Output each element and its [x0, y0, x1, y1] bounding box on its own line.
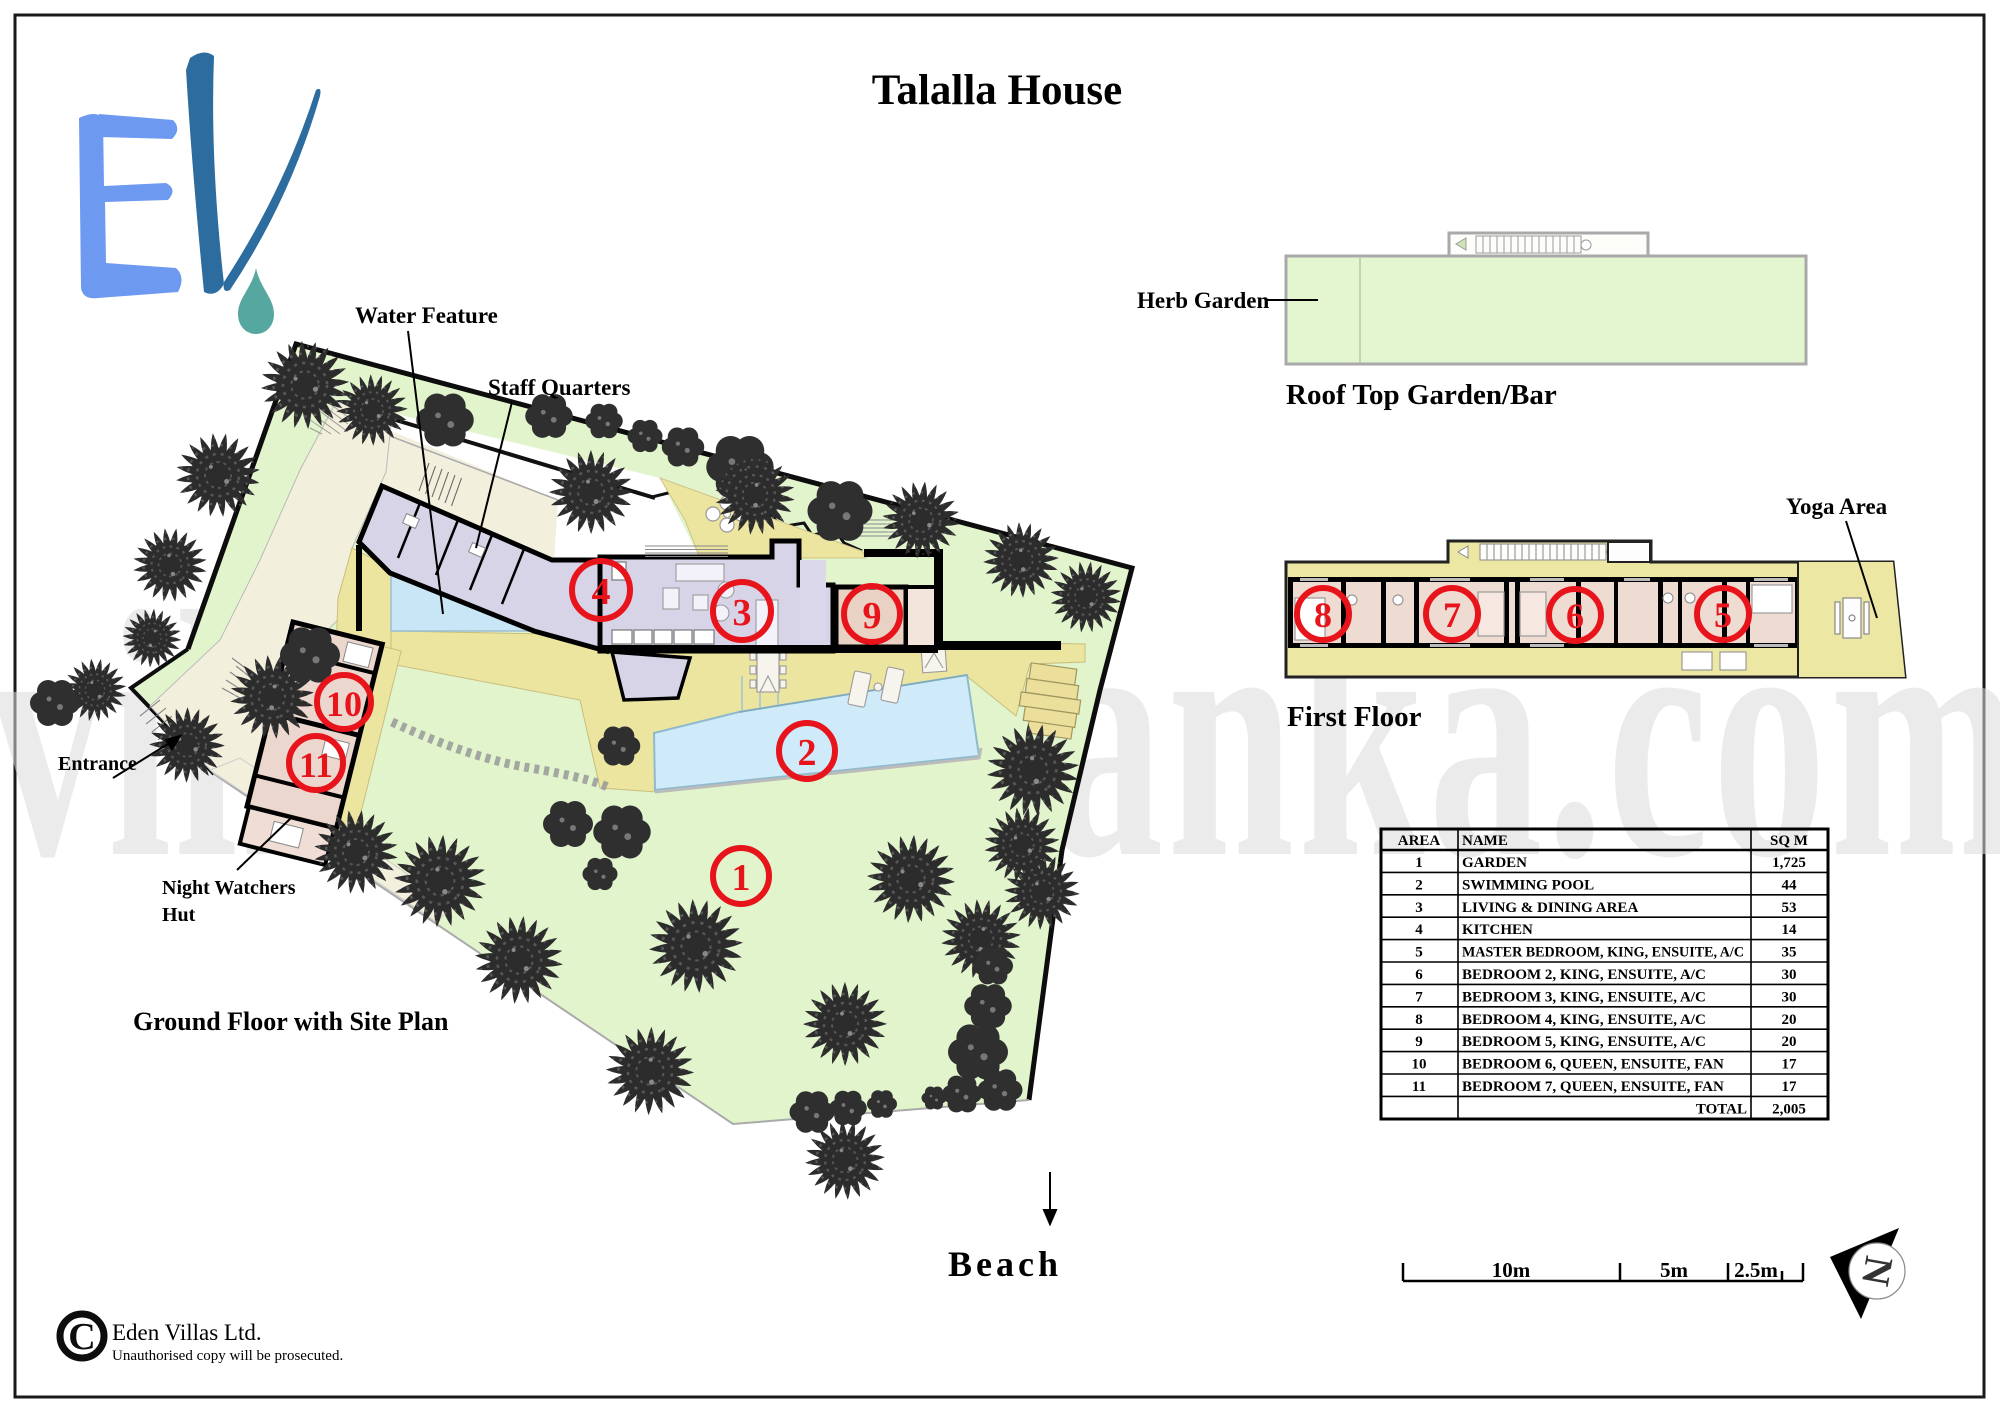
svg-text:6: 6 — [1566, 596, 1584, 636]
svg-text:44: 44 — [1782, 877, 1798, 893]
svg-text:BEDROOM 6, QUEEN, ENSUITE, FAN: BEDROOM 6, QUEEN, ENSUITE, FAN — [1462, 1057, 1724, 1073]
svg-text:6: 6 — [1415, 967, 1423, 983]
svg-text:Beach: Beach — [948, 1244, 1058, 1284]
svg-text:8: 8 — [1415, 1012, 1423, 1028]
svg-text:First Floor: First Floor — [1287, 701, 1422, 733]
svg-text:SQ M: SQ M — [1770, 833, 1808, 849]
svg-text:Hut: Hut — [162, 904, 196, 926]
svg-text:9: 9 — [1415, 1034, 1423, 1050]
svg-text:9: 9 — [863, 595, 882, 637]
svg-text:20: 20 — [1782, 1034, 1797, 1050]
svg-text:MASTER BEDROOM, KING, ENSUITE,: MASTER BEDROOM, KING, ENSUITE, A/C — [1462, 945, 1744, 961]
svg-text:LIVING & DINING AREA: LIVING & DINING AREA — [1462, 900, 1638, 916]
svg-text:AREA: AREA — [1398, 833, 1441, 849]
svg-text:2.5m: 2.5m — [1734, 1258, 1778, 1282]
svg-text:5m: 5m — [1660, 1258, 1689, 1282]
svg-text:GARDEN: GARDEN — [1462, 855, 1527, 871]
svg-text:7: 7 — [1443, 595, 1461, 635]
svg-text:BEDROOM 3, KING, ENSUITE, A/C: BEDROOM 3, KING, ENSUITE, A/C — [1462, 989, 1706, 1005]
svg-text:Staff Quarters: Staff Quarters — [488, 375, 630, 400]
svg-text:SWIMMING POOL: SWIMMING POOL — [1462, 877, 1594, 893]
svg-text:BEDROOM 7, QUEEN, ENSUITE, FAN: BEDROOM 7, QUEEN, ENSUITE, FAN — [1462, 1079, 1724, 1095]
svg-text:10: 10 — [326, 684, 362, 724]
svg-text:Entrance: Entrance — [58, 753, 137, 775]
svg-text:17: 17 — [1782, 1057, 1798, 1073]
svg-text:7: 7 — [1415, 989, 1423, 1005]
svg-text:KITCHEN: KITCHEN — [1462, 922, 1533, 938]
svg-text:Night Watchers: Night Watchers — [162, 877, 296, 899]
svg-text:Eden Villas Ltd.: Eden Villas Ltd. — [112, 1320, 262, 1345]
svg-text:2,005: 2,005 — [1772, 1101, 1806, 1117]
svg-text:10m: 10m — [1492, 1258, 1531, 1282]
svg-text:BEDROOM 2, KING, ENSUITE, A/C: BEDROOM 2, KING, ENSUITE, A/C — [1462, 967, 1706, 983]
svg-text:2: 2 — [1415, 877, 1423, 893]
svg-text:1: 1 — [732, 857, 751, 899]
svg-text:30: 30 — [1782, 967, 1797, 983]
svg-text:20: 20 — [1782, 1012, 1797, 1028]
svg-text:5: 5 — [1415, 945, 1423, 961]
svg-text:11: 11 — [1412, 1079, 1426, 1095]
svg-text:Water Feature: Water Feature — [355, 303, 498, 328]
svg-text:1: 1 — [1415, 855, 1423, 871]
svg-text:Yoga Area: Yoga Area — [1786, 494, 1888, 519]
svg-text:Unauthorised copy will be pros: Unauthorised copy will be prosecuted. — [112, 1348, 343, 1364]
svg-text:4: 4 — [1415, 922, 1423, 938]
svg-text:TOTAL: TOTAL — [1696, 1101, 1747, 1117]
svg-text:11: 11 — [299, 745, 333, 785]
svg-text:BEDROOM 4, KING, ENSUITE, A/C: BEDROOM 4, KING, ENSUITE, A/C — [1462, 1012, 1706, 1028]
svg-text:2: 2 — [798, 732, 817, 774]
svg-text:8: 8 — [1314, 595, 1332, 635]
svg-text:BEDROOM 5, KING, ENSUITE, A/C: BEDROOM 5, KING, ENSUITE, A/C — [1462, 1034, 1706, 1050]
svg-text:NAME: NAME — [1462, 833, 1508, 849]
svg-text:Talalla House: Talalla House — [872, 67, 1123, 114]
svg-text:Herb Garden: Herb Garden — [1137, 288, 1269, 313]
svg-text:Ground Floor with Site Plan: Ground Floor with Site Plan — [133, 1007, 449, 1036]
svg-text:17: 17 — [1782, 1079, 1798, 1095]
svg-text:Roof Top Garden/Bar: Roof Top Garden/Bar — [1286, 379, 1557, 411]
svg-text:3: 3 — [1415, 900, 1423, 916]
svg-text:14: 14 — [1782, 922, 1798, 938]
svg-text:C: C — [68, 1316, 95, 1358]
svg-text:30: 30 — [1782, 989, 1797, 1005]
svg-text:10: 10 — [1412, 1057, 1427, 1073]
svg-text:1,725: 1,725 — [1772, 855, 1806, 871]
svg-text:53: 53 — [1782, 900, 1797, 916]
svg-text:5: 5 — [1714, 595, 1732, 635]
svg-text:35: 35 — [1782, 945, 1797, 961]
svg-text:4: 4 — [592, 571, 611, 613]
svg-text:3: 3 — [733, 592, 752, 634]
